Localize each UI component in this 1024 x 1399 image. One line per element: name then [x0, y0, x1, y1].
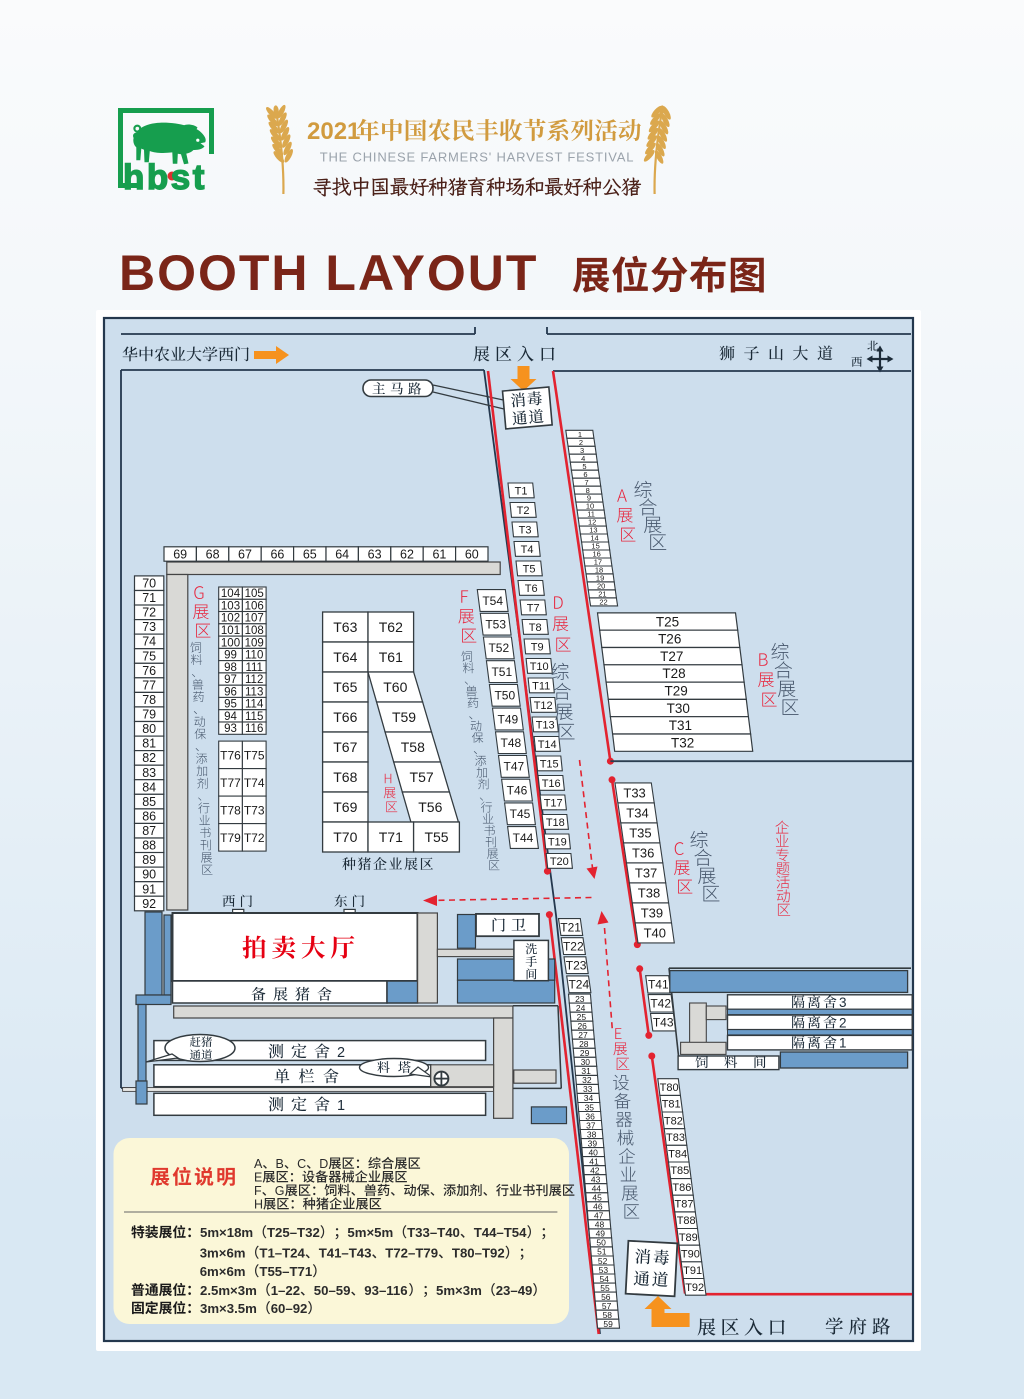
- svg-text:T71: T71: [379, 829, 403, 845]
- svg-text:108: 108: [245, 625, 264, 637]
- svg-text:T69: T69: [333, 799, 357, 815]
- svg-text:T25: T25: [656, 614, 679, 629]
- svg-text:61: 61: [432, 547, 446, 561]
- svg-text:68: 68: [206, 547, 220, 561]
- svg-text:111: 111: [245, 662, 262, 674]
- svg-text:T17: T17: [544, 797, 563, 809]
- svg-text:91: 91: [142, 882, 156, 896]
- svg-text:B: B: [276, 1157, 284, 1171]
- svg-text:T30: T30: [667, 701, 690, 716]
- svg-text:T59: T59: [392, 709, 416, 725]
- svg-text:60: 60: [465, 547, 479, 561]
- svg-text:84: 84: [142, 780, 156, 794]
- svg-text:102: 102: [221, 613, 240, 625]
- svg-text:hbst: hbst: [123, 158, 207, 197]
- svg-text:T46: T46: [507, 783, 528, 797]
- svg-text:80: 80: [142, 722, 156, 736]
- svg-text:104: 104: [221, 588, 241, 600]
- svg-text:T27: T27: [660, 649, 683, 664]
- svg-text:T39: T39: [641, 906, 663, 921]
- svg-text:T20: T20: [550, 856, 569, 868]
- svg-text:T72: T72: [244, 831, 265, 845]
- svg-text:T85: T85: [670, 1165, 689, 1177]
- svg-text:3m×6m: 3m×6m: [200, 1246, 246, 1261]
- svg-text:1: 1: [337, 1098, 345, 1114]
- svg-text:73: 73: [142, 620, 156, 634]
- svg-text:5m×5m: 5m×5m: [347, 1225, 393, 1240]
- svg-text:74: 74: [142, 635, 156, 649]
- svg-text:T1–T24: T1–T24: [259, 1246, 305, 1261]
- svg-text:82: 82: [142, 751, 156, 765]
- svg-text:95: 95: [224, 699, 237, 711]
- svg-text:70: 70: [142, 577, 156, 591]
- svg-text:T33: T33: [623, 786, 645, 801]
- svg-text:T51: T51: [491, 665, 512, 679]
- svg-text:98: 98: [224, 662, 237, 674]
- svg-text:92: 92: [142, 897, 156, 911]
- svg-text:T45: T45: [510, 807, 531, 821]
- svg-text:3m×3.5m: 3m×3.5m: [200, 1301, 257, 1316]
- svg-text:T44–T54: T44–T54: [474, 1225, 527, 1240]
- svg-text:T76: T76: [220, 748, 241, 762]
- svg-text:T63: T63: [333, 619, 357, 635]
- svg-text:T57: T57: [410, 769, 434, 785]
- svg-text:64: 64: [335, 547, 349, 561]
- svg-text:T55: T55: [424, 829, 448, 845]
- svg-text:22: 22: [599, 598, 607, 607]
- svg-text:T43: T43: [653, 1016, 674, 1030]
- svg-text:T7: T7: [527, 602, 540, 614]
- svg-text:60–92: 60–92: [271, 1301, 308, 1316]
- svg-text:113: 113: [245, 686, 263, 698]
- svg-text:T67: T67: [333, 739, 357, 755]
- svg-text:T77: T77: [220, 776, 241, 790]
- svg-text:T44: T44: [513, 831, 534, 845]
- svg-text:T62: T62: [379, 619, 403, 635]
- svg-text:50–59: 50–59: [314, 1283, 351, 1298]
- svg-text:62: 62: [400, 547, 414, 561]
- svg-text:67: 67: [238, 547, 252, 561]
- svg-text:T88: T88: [677, 1215, 696, 1227]
- svg-text:T35: T35: [629, 826, 651, 841]
- svg-text:1: 1: [839, 1036, 847, 1051]
- svg-text:5m×18m: 5m×18m: [200, 1225, 253, 1240]
- svg-text:T87: T87: [675, 1199, 694, 1211]
- svg-text:77: 77: [142, 678, 156, 692]
- svg-text:T80: T80: [660, 1082, 679, 1094]
- svg-text:71: 71: [142, 591, 156, 605]
- svg-text:T72–T79: T72–T79: [385, 1246, 438, 1261]
- svg-text:T12: T12: [534, 700, 553, 712]
- svg-text:T56: T56: [418, 799, 442, 815]
- svg-text:T3: T3: [519, 524, 532, 536]
- svg-text:T60: T60: [383, 679, 407, 695]
- svg-text:T5: T5: [523, 563, 536, 575]
- svg-text:A: A: [254, 1157, 263, 1171]
- svg-text:109: 109: [245, 637, 264, 649]
- svg-text:T42: T42: [650, 997, 671, 1011]
- svg-text:T13: T13: [536, 719, 555, 731]
- svg-text:T86: T86: [672, 1182, 691, 1194]
- svg-text:T14: T14: [538, 739, 557, 751]
- svg-text:T19: T19: [548, 836, 567, 848]
- svg-text:T78: T78: [220, 803, 241, 817]
- svg-text:C: C: [297, 1157, 306, 1171]
- svg-text:100: 100: [221, 637, 240, 649]
- svg-text:T40: T40: [644, 926, 666, 941]
- svg-text:115: 115: [245, 711, 263, 723]
- svg-text:5m×3m: 5m×3m: [436, 1283, 482, 1298]
- svg-text:T48: T48: [501, 736, 522, 750]
- svg-text:23–49: 23–49: [496, 1283, 533, 1298]
- svg-text:T66: T66: [333, 709, 357, 725]
- svg-text:T50: T50: [494, 689, 515, 703]
- svg-text:T4: T4: [521, 544, 534, 556]
- svg-text:T31: T31: [669, 718, 692, 733]
- svg-text:T79: T79: [220, 831, 241, 845]
- svg-text:F: F: [254, 1184, 262, 1198]
- svg-text:T91: T91: [683, 1265, 702, 1277]
- svg-text:93–116: 93–116: [364, 1283, 407, 1298]
- svg-text:94: 94: [224, 711, 237, 723]
- svg-text:G: G: [275, 1184, 285, 1198]
- svg-text:T8: T8: [529, 622, 542, 634]
- svg-text:T23: T23: [566, 959, 587, 973]
- svg-text:T75: T75: [244, 748, 265, 762]
- svg-text:T41–T43: T41–T43: [319, 1246, 372, 1261]
- svg-text:96: 96: [224, 686, 237, 698]
- svg-text:86: 86: [142, 810, 156, 824]
- svg-text:T6: T6: [525, 583, 538, 595]
- svg-text:85: 85: [142, 795, 156, 809]
- svg-text:T15: T15: [540, 758, 559, 770]
- svg-text:T10: T10: [530, 661, 549, 673]
- svg-text:106: 106: [245, 601, 264, 613]
- svg-text:T52: T52: [488, 641, 509, 655]
- svg-text:T21: T21: [560, 920, 581, 934]
- svg-text:2021: 2021: [307, 118, 360, 145]
- svg-text:T68: T68: [333, 769, 357, 785]
- svg-text:T24: T24: [568, 978, 589, 992]
- svg-text:101: 101: [221, 625, 240, 637]
- svg-text:T53: T53: [485, 618, 506, 632]
- svg-text:D: D: [319, 1157, 328, 1171]
- svg-text:T83: T83: [666, 1132, 685, 1144]
- svg-text:T84: T84: [668, 1149, 687, 1161]
- svg-text:T32: T32: [671, 735, 694, 750]
- svg-text:87: 87: [142, 824, 156, 838]
- svg-text:T16: T16: [542, 778, 561, 790]
- svg-text:112: 112: [245, 674, 263, 686]
- svg-text:T54: T54: [482, 594, 503, 608]
- svg-text:2.5m×3m: 2.5m×3m: [200, 1283, 257, 1298]
- svg-text:83: 83: [142, 766, 156, 780]
- svg-text:T34: T34: [626, 806, 648, 821]
- svg-text:T81: T81: [662, 1099, 681, 1111]
- svg-text:T41: T41: [648, 978, 669, 992]
- svg-text:T47: T47: [504, 760, 525, 774]
- svg-text:97: 97: [224, 674, 237, 686]
- svg-text:T49: T49: [498, 712, 519, 726]
- svg-text:T90: T90: [681, 1249, 700, 1261]
- svg-text:H: H: [254, 1198, 263, 1212]
- svg-text:79: 79: [142, 708, 156, 722]
- svg-text:114: 114: [245, 699, 264, 711]
- svg-text:66: 66: [270, 547, 284, 561]
- svg-text:T38: T38: [638, 886, 660, 901]
- svg-text:E: E: [254, 1171, 262, 1185]
- svg-text:93: 93: [224, 723, 237, 735]
- svg-text:6m×6m: 6m×6m: [200, 1264, 246, 1279]
- svg-text:T28: T28: [662, 666, 685, 681]
- svg-text:110: 110: [245, 650, 263, 662]
- svg-text:T11: T11: [532, 680, 550, 692]
- svg-text:76: 76: [142, 664, 156, 678]
- svg-text:T58: T58: [401, 739, 425, 755]
- svg-text:T89: T89: [679, 1232, 698, 1244]
- svg-text:T2: T2: [517, 505, 530, 517]
- svg-text:2: 2: [337, 1045, 345, 1061]
- svg-text:T37: T37: [635, 866, 657, 881]
- svg-text:88: 88: [142, 839, 156, 853]
- svg-text:THE CHINESE FARMERS' HARVEST: THE CHINESE FARMERS' HARVEST FESTIVAL: [320, 150, 635, 165]
- svg-text:59: 59: [603, 1319, 613, 1329]
- svg-text:99: 99: [224, 650, 237, 662]
- svg-text:78: 78: [142, 693, 156, 707]
- svg-text:63: 63: [368, 547, 382, 561]
- svg-text:T22: T22: [563, 939, 584, 953]
- svg-text:69: 69: [173, 547, 187, 561]
- svg-text:T82: T82: [664, 1115, 683, 1127]
- svg-text:T92: T92: [685, 1282, 704, 1294]
- svg-text:T36: T36: [632, 846, 654, 861]
- svg-text:3: 3: [839, 995, 847, 1010]
- svg-text:T1: T1: [515, 485, 528, 497]
- svg-text:T9: T9: [531, 641, 544, 653]
- svg-text:T33–T40: T33–T40: [407, 1225, 460, 1240]
- svg-text:T74: T74: [244, 776, 265, 790]
- svg-text:116: 116: [245, 723, 263, 735]
- svg-text:72: 72: [142, 606, 156, 620]
- svg-text:2: 2: [839, 1015, 847, 1030]
- svg-text:BOOTH LAYOUT: BOOTH LAYOUT: [119, 245, 538, 301]
- svg-text:T70: T70: [333, 829, 357, 845]
- svg-text:1–22: 1–22: [271, 1283, 300, 1298]
- svg-text:105: 105: [245, 588, 264, 600]
- svg-text:T25–T32: T25–T32: [267, 1225, 320, 1240]
- svg-text:T29: T29: [664, 684, 687, 699]
- svg-text:T80–T92: T80–T92: [452, 1246, 505, 1261]
- svg-text:T64: T64: [333, 649, 357, 665]
- svg-text:103: 103: [221, 601, 240, 613]
- svg-text:81: 81: [142, 737, 156, 751]
- svg-text:65: 65: [303, 547, 317, 561]
- svg-text:T65: T65: [333, 679, 357, 695]
- svg-text:T73: T73: [244, 803, 265, 817]
- svg-text:75: 75: [142, 649, 156, 663]
- svg-text:90: 90: [142, 868, 156, 882]
- svg-text:T61: T61: [379, 649, 403, 665]
- svg-text:107: 107: [245, 613, 264, 625]
- svg-text:T26: T26: [658, 632, 681, 647]
- svg-text:89: 89: [142, 853, 156, 867]
- svg-text:T55–T71: T55–T71: [259, 1264, 312, 1279]
- svg-text:T18: T18: [546, 817, 565, 829]
